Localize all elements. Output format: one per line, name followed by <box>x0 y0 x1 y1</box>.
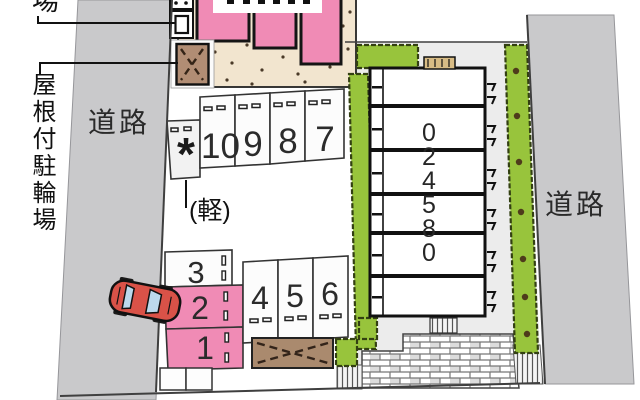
building-digit: 2 <box>415 145 443 169</box>
entrance-canopy <box>424 57 455 69</box>
stall-number-5: 5 <box>279 278 311 315</box>
stall-number-7: 7 <box>307 120 343 160</box>
stall-number-3: 3 <box>180 255 212 291</box>
building-digit: 4 <box>415 169 443 193</box>
stall-number-2: 2 <box>184 290 216 327</box>
cropped-place-label: 場 <box>24 0 63 13</box>
stall-number-8: 8 <box>272 122 304 162</box>
hedge-top <box>357 45 418 68</box>
road-left <box>57 0 172 400</box>
site-plan-drawing <box>0 0 640 400</box>
entrance-steps <box>430 318 457 333</box>
stall-number-9: 9 <box>237 125 269 165</box>
road-label-left: 道路 <box>88 101 150 141</box>
building-number-vertical: 0 2 4 5 8 0 <box>415 121 443 265</box>
site-plan: 道路 道路 場 屋根付駐輪場 * (軽) 10 9 8 7 3 2 1 4 5 … <box>0 0 640 400</box>
building-digit: 8 <box>415 217 443 241</box>
stall-number-4: 4 <box>244 280 276 317</box>
stall-number-1: 1 <box>189 330 221 367</box>
bottom-box-b <box>186 368 212 390</box>
building-digit: 5 <box>415 193 443 217</box>
covered-bike-parking-label: 屋根付駐輪場 <box>24 72 59 247</box>
hatch-strip-left <box>337 365 362 389</box>
road-label-right: 道路 <box>545 183 607 223</box>
bush-small-a <box>359 318 377 339</box>
utility-meter-boxes <box>170 0 193 38</box>
building-digit: 0 <box>415 121 443 145</box>
stall-number-6: 6 <box>314 276 346 313</box>
stall-number-10: 10 <box>201 127 235 167</box>
bottom-box-a <box>160 368 186 390</box>
storage-area <box>252 338 333 368</box>
bush-small-b <box>336 339 357 366</box>
kei-stall-asterisk: * <box>170 131 202 177</box>
kei-note-label: (軽) <box>189 191 231 227</box>
building-digit: 0 <box>415 241 443 265</box>
